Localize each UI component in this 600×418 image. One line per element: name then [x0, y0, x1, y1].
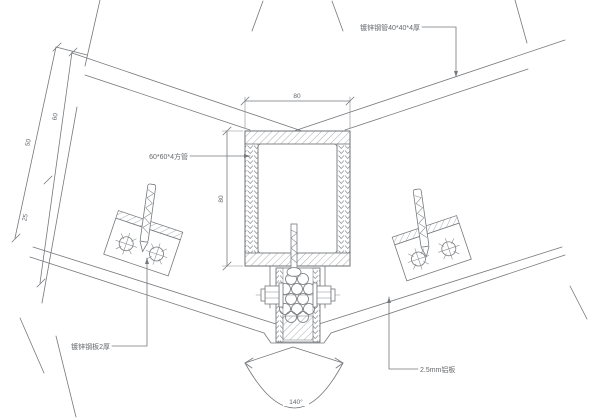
dim-50: 50 [24, 138, 32, 147]
dim-tube-width: 80 [293, 93, 301, 100]
cad-detail-drawing: 60 50 25 80 80 [0, 0, 600, 418]
annotation-tube-profile: 60*60*4方管 [149, 152, 250, 161]
angle-indicator-fan: 140° [245, 347, 343, 408]
right-bracket [392, 216, 471, 281]
center-steel-tube [245, 131, 350, 266]
label-top-right-member: 镀锌钢管40*40*4厚 [360, 23, 420, 32]
slope-dimension-cluster: 60 50 25 [12, 0, 100, 303]
label-tube-profile: 60*60*4方管 [149, 152, 188, 161]
angle-label: 140° [289, 398, 303, 406]
dim-60: 60 [51, 112, 59, 121]
dim-25: 25 [21, 213, 29, 222]
annotation-bottom-right-panel: 2.5mm铝板 [387, 297, 455, 374]
annotation-bottom-left-plate: 镀锌钢板2厚 [71, 258, 149, 351]
dim-tube-height: 80 [218, 195, 225, 203]
label-bottom-left-plate: 镀锌钢板2厚 [71, 342, 110, 351]
dimension-left-height: 80 [218, 127, 243, 270]
drawing-canvas: 60 50 25 80 80 [0, 0, 600, 418]
label-bottom-right-panel: 2.5mm铝板 [420, 365, 455, 374]
annotation-top-right-member: 镀锌钢管40*40*4厚 [360, 23, 458, 77]
dimension-top-width: 80 [241, 93, 354, 128]
